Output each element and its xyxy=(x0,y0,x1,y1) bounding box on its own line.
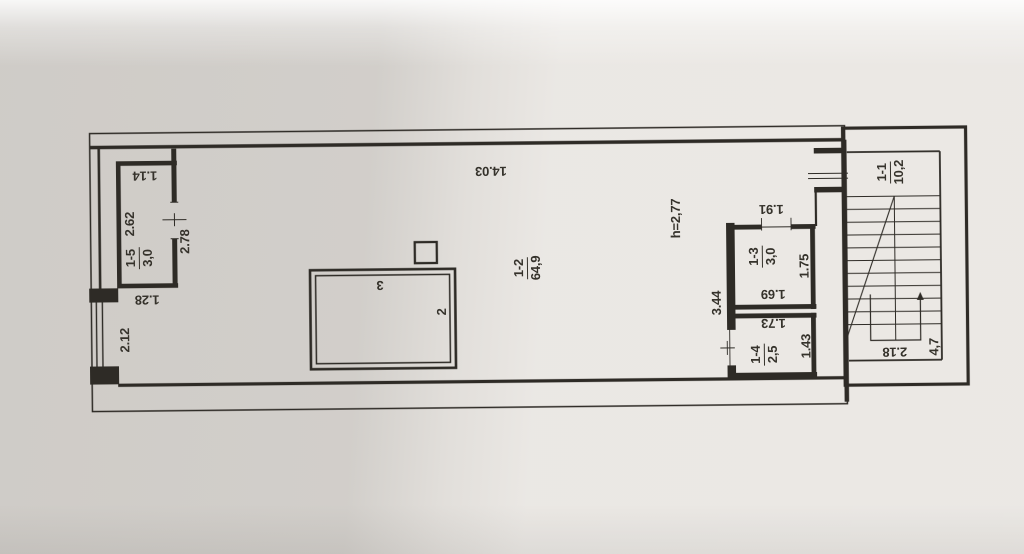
room-1-2-area: 64,9 xyxy=(527,256,542,281)
dim-hall-top: 14.03 xyxy=(475,165,507,178)
dim-stairs-length: 4,7 xyxy=(927,338,940,356)
dim-room15-side: 2.62 xyxy=(123,212,136,237)
stair-treads xyxy=(846,208,941,324)
stair-center-line xyxy=(894,196,896,340)
dim-room13-bottom: 1.69 xyxy=(761,288,786,301)
dim-room15-top: 1.14 xyxy=(133,169,158,182)
room-1-1-id: 1-1 xyxy=(875,161,891,183)
room-1-1-area: 10,2 xyxy=(890,160,905,185)
dim-wall-344: 3.44 xyxy=(710,291,723,316)
room-1-4-area: 2,5 xyxy=(764,346,779,364)
walk-line-arrow-icon xyxy=(917,292,924,300)
ceiling-height-label: h=2,77 xyxy=(669,199,682,239)
annotation-3: 3 xyxy=(377,279,384,292)
room-label-1-4: 1-42,5 xyxy=(749,343,779,366)
left-window xyxy=(89,288,119,384)
room-1-3-area: 3,0 xyxy=(762,248,777,266)
photo-of-floor-plan: 1.14 1.28 14.03 3 1.91 1.69 1.73 2.18 2.… xyxy=(0,0,1024,554)
room-label-1-5: 1-53,0 xyxy=(124,247,154,270)
room-1-5-id: 1-5 xyxy=(124,247,140,269)
dim-pier: 1.28 xyxy=(135,293,160,306)
dim-door13: 1.91 xyxy=(759,203,784,216)
room-1-4-id: 1-4 xyxy=(749,343,765,365)
dim-room14-top: 1.73 xyxy=(761,317,786,330)
dim-room14-side: 1.43 xyxy=(799,334,812,359)
room-1-5-area: 3,0 xyxy=(139,249,154,267)
room-1-3-id: 1-3 xyxy=(747,245,763,267)
room-label-1-2: 1-264,9 xyxy=(512,256,542,281)
floor-plan: 1.14 1.28 14.03 3 1.91 1.69 1.73 2.18 2.… xyxy=(0,0,1024,554)
room-1-2-id: 1-2 xyxy=(512,257,528,279)
room-label-1-3: 1-33,0 xyxy=(747,245,777,268)
dim-room13-side: 1.75 xyxy=(797,254,810,279)
annotation-2: 2 xyxy=(435,308,448,315)
dim-window: 2.12 xyxy=(118,328,131,353)
column xyxy=(415,242,437,263)
room-label-1-1: 1-110,2 xyxy=(875,160,905,185)
dim-opening-278: 2.78 xyxy=(178,229,191,254)
dim-stairs-width: 2.18 xyxy=(883,346,908,359)
